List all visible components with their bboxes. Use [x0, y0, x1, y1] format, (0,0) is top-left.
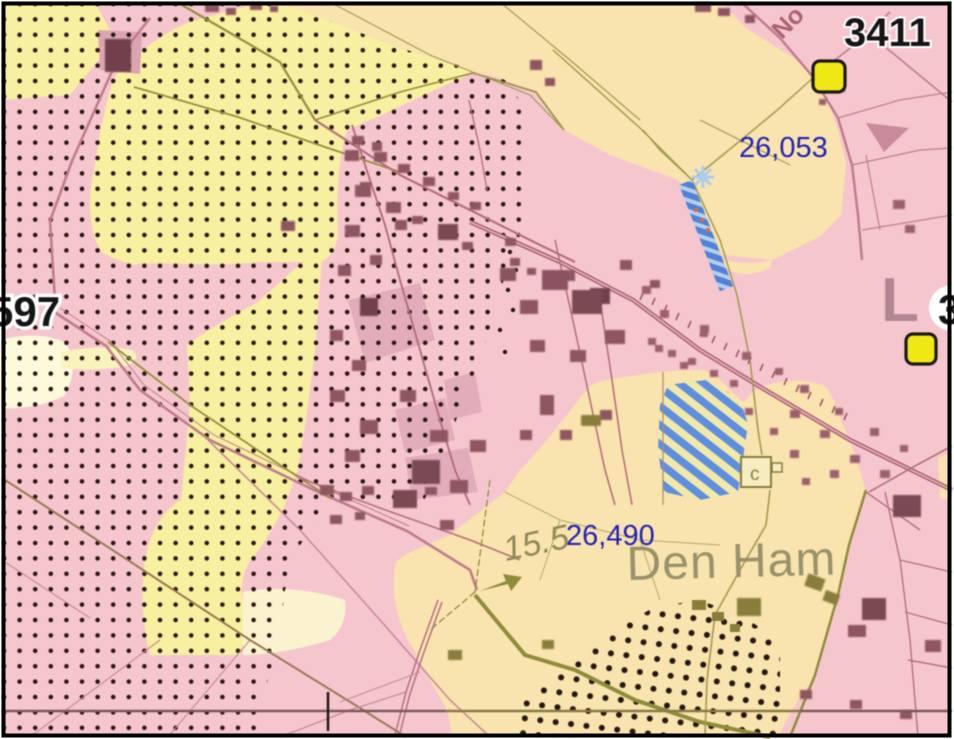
- svg-text:3: 3: [938, 286, 954, 333]
- svg-text:L: L: [881, 266, 919, 335]
- svg-text:c: c: [750, 464, 760, 485]
- svg-text:26,053: 26,053: [739, 132, 828, 164]
- svg-text:597: 597: [0, 288, 60, 335]
- svg-text:Den Ham: Den Ham: [626, 533, 837, 591]
- svg-text:3411: 3411: [844, 11, 931, 55]
